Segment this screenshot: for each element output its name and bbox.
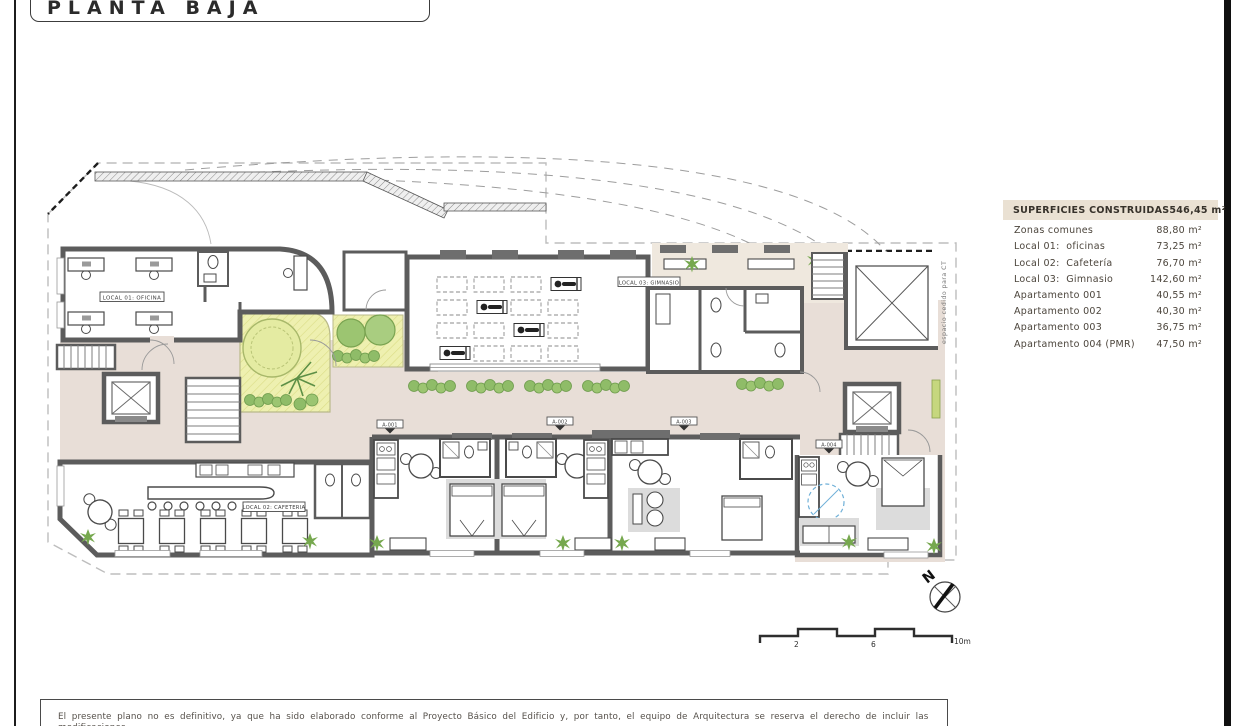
lounger [575, 538, 611, 550]
bench [748, 259, 794, 269]
svg-text:A-002: A-002 [552, 419, 568, 425]
legend-row: Local 01: oficinas 73,25 m² [1003, 236, 1218, 252]
toilet-icon [775, 343, 785, 357]
bench-press-icon [440, 347, 470, 360]
legend-row: Zonas comunes 88,80 m² [1003, 220, 1218, 236]
gym-changing-rooms [648, 288, 802, 372]
legend-row: Apartamento 004 (PMR) 47,50 m² [1003, 333, 1218, 349]
sink-icon [478, 442, 487, 450]
plan-sheet: PLANTA BAJA [0, 0, 1240, 726]
legend-row: Local 02: Cafetería 76,70 m² [1003, 252, 1218, 268]
legend-row: Local 03: Gimnasio 142,60 m² [1003, 269, 1218, 285]
scale-bar: 2 6 10m [760, 629, 971, 649]
toilet-icon [711, 343, 721, 357]
north-arrow: N [920, 567, 960, 612]
elevator-icon [845, 384, 899, 432]
toilet-icon [766, 446, 775, 458]
elevator-icon [104, 374, 158, 422]
armchair [647, 510, 663, 526]
double-bed [502, 484, 546, 536]
door-swing-large [130, 181, 211, 244]
tree-icon [365, 315, 395, 345]
cafeteria-label: LOCAL 02: CAFETERIA [243, 505, 306, 511]
tree-icon [337, 319, 365, 347]
legend-row: Apartamento 003 36,75 m² [1003, 317, 1218, 333]
bench-press-icon [477, 301, 507, 314]
bar-counter [148, 487, 274, 499]
lounger [390, 538, 426, 550]
toilet-icon [352, 474, 361, 486]
tree-icon [243, 319, 301, 377]
svg-text:A-004: A-004 [821, 442, 837, 448]
office-label: LOCAL 01: OFICINA [103, 296, 161, 302]
double-bed [450, 484, 494, 536]
legend-row: Apartamento 001 40,55 m² [1003, 285, 1218, 301]
scale-tick-label: 2 [794, 640, 799, 649]
scale-tick-label: 10m [954, 637, 971, 646]
toilet-icon [523, 446, 532, 458]
legend-header: SUPERFICIES CONSTRUIDAS 546,45 m² [1003, 200, 1218, 220]
bench-press-icon [551, 278, 581, 291]
double-bed [882, 458, 924, 506]
toilet-icon [711, 298, 721, 312]
lounger [655, 538, 685, 550]
north-label: N [920, 567, 939, 587]
bench-press-icon [514, 324, 544, 337]
sink-icon [756, 294, 768, 303]
sink-icon [509, 442, 518, 450]
single-bed [722, 496, 762, 540]
disclaimer-box: El presente plano no es definitivo, ya q… [40, 699, 948, 726]
svg-text:A-001: A-001 [382, 422, 398, 428]
ct-label: espacio cedido para CT [941, 261, 948, 344]
disclaimer-text: El presente plano no es definitivo, ya q… [58, 712, 931, 726]
desk [294, 256, 307, 290]
legend-row: Apartamento 002 40,30 m² [1003, 301, 1218, 317]
toilet-icon [326, 474, 335, 486]
floor-plan: LOCAL 01: OFICINA [0, 0, 1240, 726]
legend-header-value: 546,45 m² [1169, 205, 1226, 216]
svg-text:A-003: A-003 [676, 419, 692, 425]
surface-legend: SUPERFICIES CONSTRUIDAS 546,45 m² Zonas … [1003, 200, 1218, 350]
retaining-wall-hatched [95, 172, 546, 218]
cafeteria-area: LOCAL 02: CAFETERIA [60, 462, 372, 557]
toilet-icon [208, 256, 218, 269]
lounger [868, 538, 908, 550]
toilet-icon [465, 446, 474, 458]
legend-header-label: SUPERFICIES CONSTRUIDAS [1013, 205, 1169, 216]
ct-room: espacio cedido para CT [846, 252, 948, 348]
gym-label: LOCAL 03: GIMNASIO [619, 281, 679, 287]
armchair [647, 492, 663, 508]
scale-tick-label: 6 [871, 640, 876, 649]
